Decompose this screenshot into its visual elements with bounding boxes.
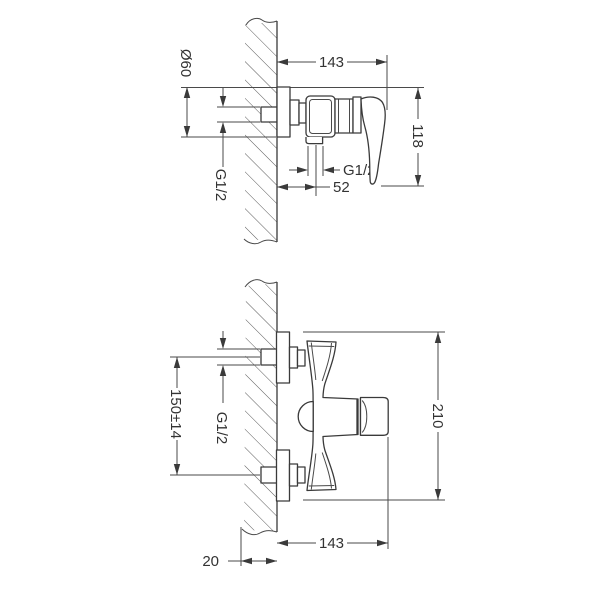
mixer-front-profile	[261, 332, 388, 501]
dim-height-118: 118	[409, 88, 426, 186]
body-boss	[298, 402, 313, 432]
dim-label-inlet-thread: G1/2	[212, 169, 229, 202]
technical-drawing-page: 143 Ø60 G1/2 118	[0, 0, 600, 600]
dim-width-143: 143	[277, 54, 387, 71]
dim-label-inlet-thread: G1/2	[213, 412, 230, 445]
inlet-pipe	[261, 107, 277, 122]
side-view: 143 Ø60 G1/2 118	[177, 18, 426, 243]
dim-width-143: 143	[277, 535, 388, 552]
dim-label-wall-clearance: 20	[202, 553, 219, 570]
dim-label-overall-height: 210	[429, 403, 446, 428]
dim-label-width: 143	[319, 54, 344, 71]
valve-body	[306, 96, 335, 137]
union-nut	[290, 100, 299, 125]
escutcheon-bottom	[277, 450, 290, 501]
extension-lines	[170, 332, 445, 566]
technical-drawing: 143 Ø60 G1/2 118	[0, 0, 600, 600]
dim-overall-height: 210	[429, 332, 446, 500]
union-nut-step	[299, 103, 306, 123]
union-nut-bottom-step	[298, 467, 306, 483]
union-nut-top-step	[298, 350, 306, 366]
escutcheon-top	[277, 332, 290, 383]
handle-cap	[353, 97, 361, 133]
dim-outlet-offset-52: 52	[277, 179, 350, 196]
dim-label-height: 118	[409, 124, 426, 148]
dim-outlet-thread: G1/2	[289, 162, 376, 179]
dim-escutcheon-diameter: Ø60	[177, 49, 194, 137]
mixer-body	[307, 341, 358, 491]
inlet-pipe-top	[261, 349, 277, 365]
front-view: 150±14 G1/2 210 143	[167, 280, 446, 570]
dim-label-width: 143	[319, 535, 344, 552]
dim-inlet-thread: G1/2	[213, 331, 230, 444]
shower-outlet	[306, 137, 323, 144]
union-nut-bottom	[290, 464, 298, 486]
dim-label-inlet-spacing: 150±14	[167, 389, 184, 439]
cartridge-housing	[335, 99, 353, 133]
dim-wall-clearance-20: 20	[202, 553, 277, 570]
dim-inlet-thread: G1/2	[212, 88, 229, 201]
dim-label-escutcheon: Ø60	[177, 49, 194, 77]
wall-hatch	[244, 18, 277, 243]
escutcheon-flange	[277, 87, 290, 137]
dim-label-outlet-offset: 52	[333, 179, 350, 196]
union-nut-top	[290, 347, 298, 368]
dim-inlet-spacing: 150±14	[167, 357, 184, 475]
wall-hatch	[242, 280, 277, 535]
inlet-pipe-bottom	[261, 467, 277, 483]
